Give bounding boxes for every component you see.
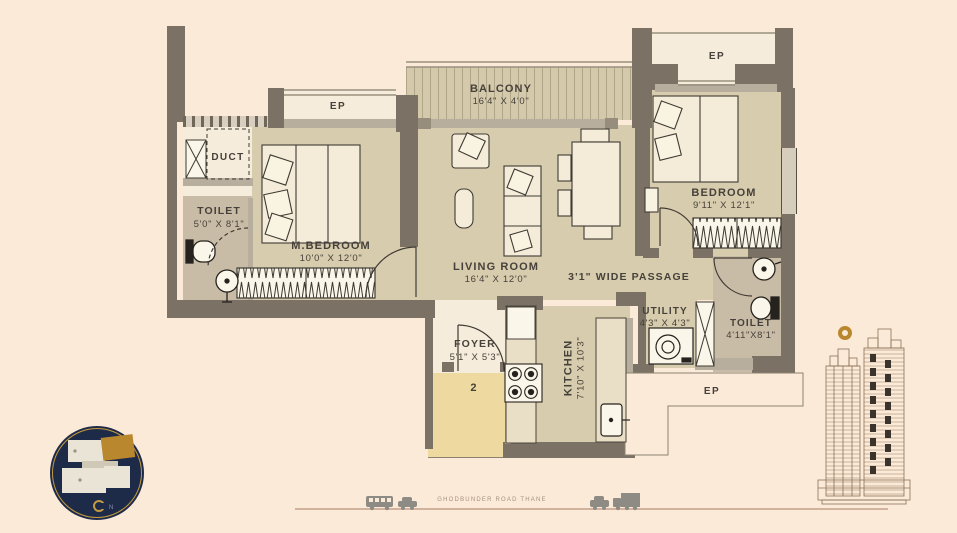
washbasin-icon	[216, 270, 238, 302]
wc-icon	[751, 297, 779, 319]
label-foyer: FOYER 5'1" X 5'3"	[450, 338, 501, 364]
room-dims: 10'0" X 12'0"	[291, 253, 371, 265]
m-bedroom-wardrobe-icon	[237, 268, 375, 298]
m-bedroom-bed-icon	[262, 145, 360, 243]
stove-icon	[505, 364, 542, 402]
label-m-bedroom: M.BEDROOM 10'0" X 12'0"	[291, 239, 371, 266]
washbasin-icon	[753, 258, 781, 280]
towers-illustration	[818, 326, 910, 504]
room-name: EP	[709, 50, 725, 63]
road	[295, 493, 888, 510]
truck-icon	[613, 493, 640, 510]
room-name: EP	[330, 100, 346, 113]
room-dims: 9'11" X 12'1"	[691, 200, 756, 212]
car-icon	[590, 496, 609, 510]
label-bedroom: BEDROOM 9'11" X 12'1"	[691, 186, 756, 213]
room-name: 3'1" WIDE PASSAGE	[568, 271, 690, 285]
room-name: TOILET	[726, 317, 775, 330]
room-name: BALCONY	[470, 82, 532, 96]
duct-shaft-icon	[186, 140, 206, 178]
key-plan-logo: N	[50, 426, 144, 520]
label-passage: 3'1" WIDE PASSAGE	[568, 271, 690, 285]
bus-icon	[366, 496, 393, 510]
unit-number: 2	[470, 381, 477, 395]
label-utility: UTILITY 4'3" X 4'3"	[640, 305, 691, 330]
armchair-icon	[452, 133, 489, 168]
label-toilet-left: TOILET 5'0" X 8'1"	[194, 205, 245, 231]
room-name: KITCHEN	[562, 337, 576, 400]
room-name: M.BEDROOM	[291, 239, 371, 253]
label-duct: DUCT	[211, 151, 244, 164]
label-ep-top-right: EP	[709, 50, 725, 63]
label-balcony: BALCONY 16'4" X 4'0"	[470, 82, 532, 109]
utility-shaft-icon	[696, 302, 714, 366]
label-living-room: LIVING ROOM 16'4" X 12'0"	[453, 260, 539, 287]
side-table-icon	[455, 189, 473, 228]
room-name: LIVING ROOM	[453, 260, 539, 274]
label-unit-number: 2	[470, 381, 477, 395]
label-ep-top-left: EP	[330, 100, 346, 113]
road-label: GHODBUNDER ROAD THANE	[437, 497, 546, 503]
room-dims: 7'10" X 10'3"	[576, 337, 588, 400]
floor-plan-canvas: N EP BALCONY 16'4" X 4'0" EP DUCT TOILET…	[0, 0, 957, 533]
label-kitchen: KITCHEN 7'10" X 10'3"	[562, 337, 589, 400]
room-name: FOYER	[450, 338, 501, 352]
room-name: UTILITY	[640, 305, 691, 318]
road-name: GHODBUNDER ROAD THANE	[437, 497, 546, 503]
washing-machine-icon	[649, 328, 693, 364]
room-dims: 4'3" X 4'3"	[640, 318, 691, 330]
room-dims: 16'4" X 12'0"	[453, 274, 539, 286]
room-dims: 16'4" X 4'0"	[470, 96, 532, 108]
room-dims: 5'0" X 8'1"	[194, 219, 245, 231]
room-name: BEDROOM	[691, 186, 756, 200]
label-ep-bottom: EP	[704, 385, 720, 398]
room-dims: 4'11"X8'1"	[726, 330, 775, 342]
room-dims: 5'1" X 5'3"	[450, 352, 501, 364]
label-toilet-right: TOILET 4'11"X8'1"	[726, 317, 775, 342]
compass-north-label: N	[109, 505, 113, 511]
bedroom-wardrobe-icon	[693, 218, 781, 248]
highlighted-unit	[101, 434, 136, 461]
dining-table-icon	[558, 129, 620, 239]
wc-icon	[186, 240, 215, 263]
room-name: TOILET	[194, 205, 245, 219]
room-name: EP	[704, 385, 720, 398]
sofa-icon	[504, 166, 541, 256]
car-icon	[398, 497, 417, 510]
room-name: DUCT	[211, 151, 244, 164]
